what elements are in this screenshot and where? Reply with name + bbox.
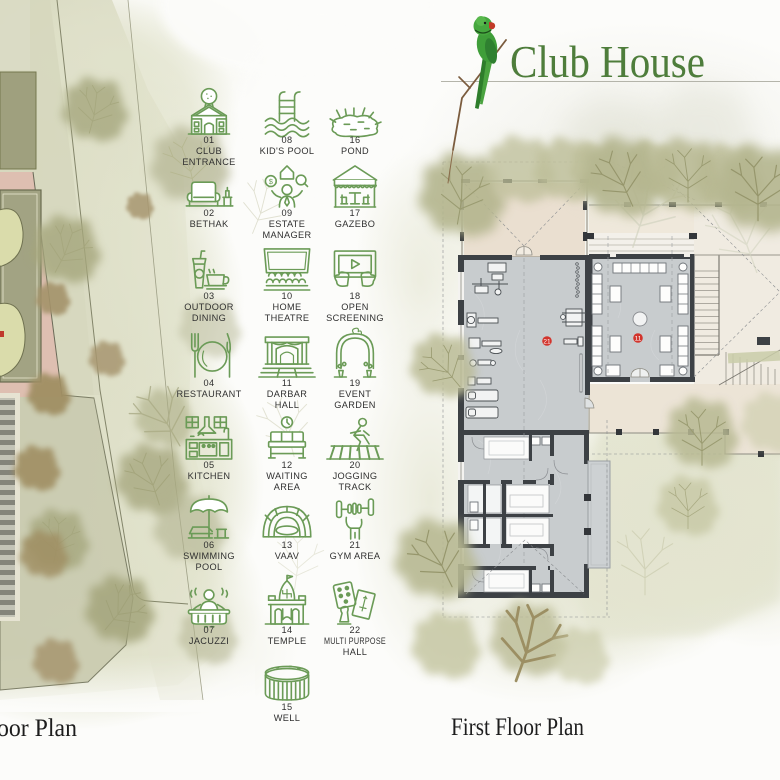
svg-text:08: 08 [282,135,293,145]
svg-text:THEATRE: THEATRE [265,313,310,323]
svg-text:21: 21 [350,540,361,550]
svg-text:10: 10 [282,291,293,301]
svg-text:12: 12 [282,460,293,470]
svg-text:16: 16 [350,135,361,145]
svg-text:oor Plan: oor Plan [0,715,77,742]
svg-text:DARBAR: DARBAR [267,389,307,399]
svg-text:ESTATE: ESTATE [269,219,305,229]
svg-text:09: 09 [282,208,293,218]
svg-text:SCREENING: SCREENING [326,313,384,323]
svg-text:11: 11 [282,378,292,388]
svg-text:WAITING: WAITING [266,471,307,481]
svg-text:17: 17 [350,208,361,218]
svg-text:WELL: WELL [274,713,300,723]
svg-text:KITCHEN: KITCHEN [188,471,231,481]
svg-text:Club House: Club House [510,36,705,87]
svg-text:GAZEBO: GAZEBO [335,219,375,229]
svg-text:DINING: DINING [192,313,226,323]
svg-text:MULTI PURPOSE: MULTI PURPOSE [324,636,386,646]
svg-text:MANAGER: MANAGER [263,230,312,240]
svg-text:GARDEN: GARDEN [334,400,375,410]
svg-text:RESTAURANT: RESTAURANT [176,389,241,399]
svg-text:HALL: HALL [275,400,299,410]
svg-text:VAAV: VAAV [275,551,300,561]
svg-text:HOME: HOME [273,302,302,312]
svg-text:JACUZZI: JACUZZI [189,636,229,646]
svg-text:EVENT: EVENT [339,389,371,399]
svg-text:ENTRANCE: ENTRANCE [182,157,235,167]
svg-text:05: 05 [204,460,215,470]
svg-text:TEMPLE: TEMPLE [268,636,307,646]
svg-text:BETHAK: BETHAK [190,219,229,229]
svg-text:02: 02 [204,208,215,218]
svg-text:TRACK: TRACK [339,482,372,492]
svg-text:SWIMMING: SWIMMING [183,551,235,561]
svg-text:21: 21 [543,339,551,346]
svg-text:KID'S POOL: KID'S POOL [260,146,315,156]
svg-text:CLUB: CLUB [196,146,222,156]
svg-text:GYM AREA: GYM AREA [330,551,381,561]
svg-text:22: 22 [350,625,361,635]
svg-text:01: 01 [204,135,215,145]
svg-text:18: 18 [350,291,361,301]
svg-text:OUTDOOR: OUTDOOR [184,302,233,312]
svg-text:07: 07 [204,625,215,635]
svg-text:04: 04 [204,378,215,388]
svg-text:11: 11 [635,336,642,343]
svg-text:15: 15 [282,702,293,712]
svg-text:OPEN: OPEN [341,302,368,312]
svg-text:POND: POND [341,146,369,156]
svg-text:06: 06 [204,540,215,550]
svg-text:19: 19 [350,378,361,388]
svg-text:POOL: POOL [196,562,223,572]
svg-text:AREA: AREA [274,482,301,492]
svg-text:14: 14 [282,625,293,635]
svg-text:HALL: HALL [343,647,367,657]
svg-text:First Floor Plan: First Floor Plan [451,714,584,741]
svg-text:13: 13 [282,540,293,550]
svg-text:JOGGING: JOGGING [333,471,378,481]
svg-text:20: 20 [350,460,361,470]
svg-text:03: 03 [204,291,215,301]
